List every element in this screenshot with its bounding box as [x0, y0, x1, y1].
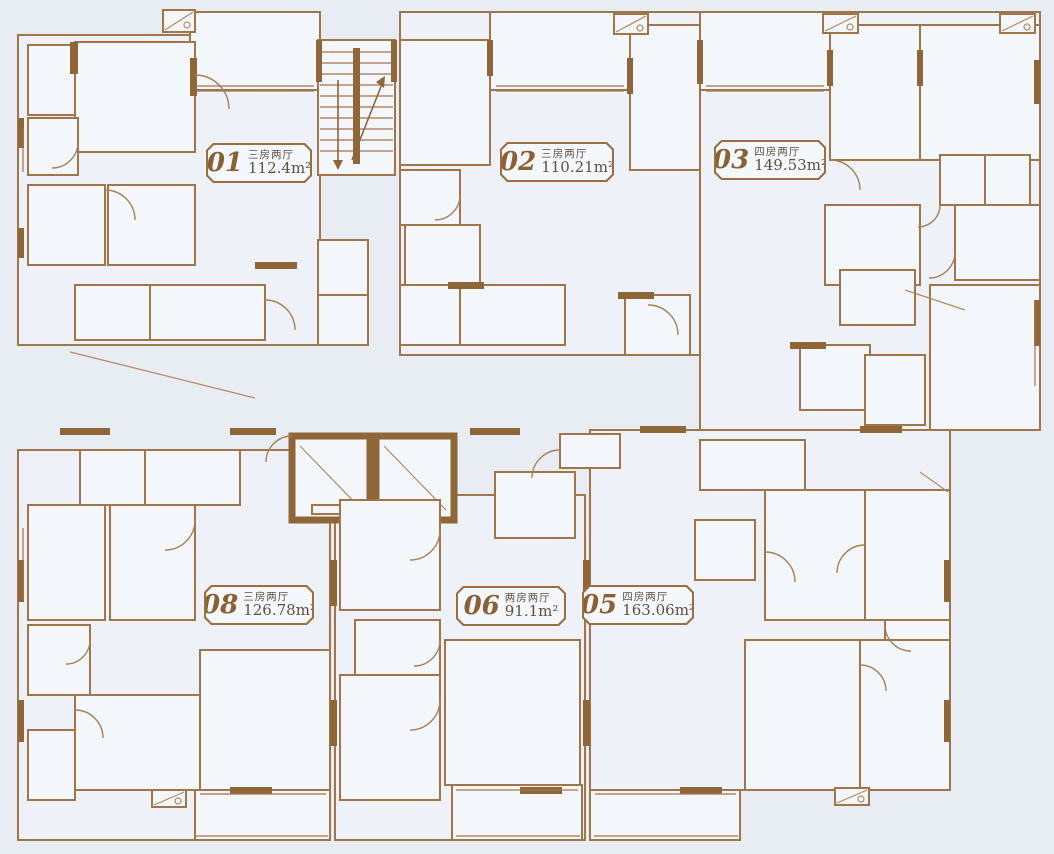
unit-badge-frame: 05 四房两厅 163.06m²: [584, 587, 692, 623]
floorplan-canvas: 01 三房两厅 112.4m² 02 三房两厅 110.21m² 03: [0, 0, 1054, 854]
unit-info: 四房两厅 149.53m²: [754, 147, 827, 174]
unit-info: 三房两厅 112.4m²: [248, 150, 311, 177]
ac-unit-icon: [152, 790, 186, 807]
unit-number: 01: [207, 150, 243, 176]
unit-info: 四房两厅 163.06m²: [622, 592, 695, 619]
unit-area-label: 163.06m²: [622, 603, 695, 619]
unit-area-label: 149.53m²: [754, 158, 827, 174]
unit-number: 06: [464, 593, 500, 619]
ac-unit-icon: [614, 14, 648, 34]
unit-badge: 03 四房两厅 149.53m²: [714, 140, 826, 180]
unit-area-label: 112.4m²: [248, 161, 311, 177]
unit-badge: 05 四房两厅 163.06m²: [582, 585, 694, 625]
unit-info: 两房两厅 91.1m²: [505, 593, 559, 620]
unit-badge-frame: 02 三房两厅 110.21m²: [502, 144, 612, 180]
unit-area-label: 110.21m²: [541, 160, 614, 176]
unit-badge-frame: 03 四房两厅 149.53m²: [716, 142, 824, 178]
unit-area-label: 126.78m²: [243, 603, 316, 619]
unit-badge: 01 三房两厅 112.4m²: [206, 143, 312, 183]
unit-number: 03: [713, 147, 749, 173]
unit-info: 三房两厅 126.78m²: [243, 592, 316, 619]
unit-badge-frame: 01 三房两厅 112.4m²: [208, 145, 310, 181]
ac-unit-icon: [163, 10, 195, 32]
unit-number: 02: [500, 149, 536, 175]
ac-unit-icon: [835, 788, 869, 805]
unit-area-label: 91.1m²: [505, 604, 559, 620]
unit-number: 08: [202, 592, 238, 618]
unit-badge: 08 三房两厅 126.78m²: [204, 585, 314, 625]
ac-unit-icon: [1000, 14, 1035, 33]
unit-badge-frame: 06 两房两厅 91.1m²: [458, 588, 564, 624]
unit-badge-frame: 08 三房两厅 126.78m²: [206, 587, 312, 623]
unit-badge: 06 两房两厅 91.1m²: [456, 586, 566, 626]
unit-info: 三房两厅 110.21m²: [541, 149, 614, 176]
ac-unit-icon: [823, 14, 858, 33]
unit-number: 05: [581, 592, 617, 618]
floorplan-walls: [0, 0, 1054, 854]
unit-badge: 02 三房两厅 110.21m²: [500, 142, 614, 182]
